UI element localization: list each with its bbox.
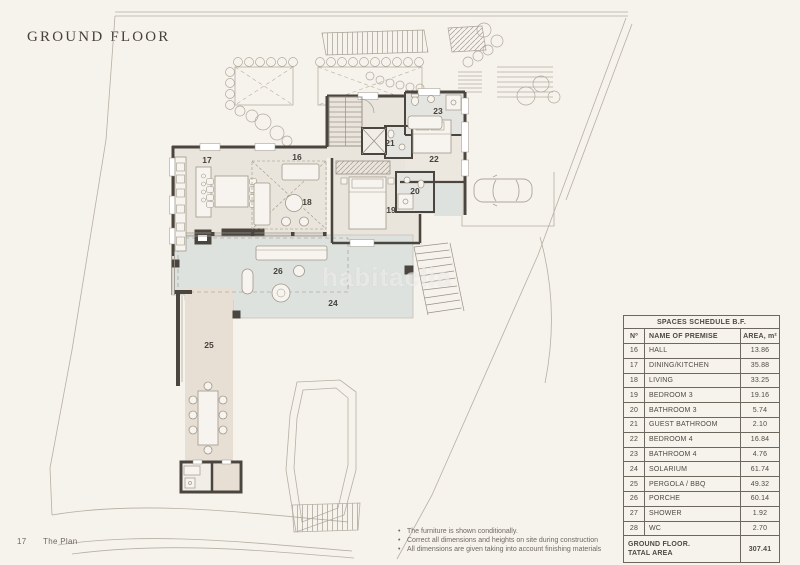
table-row: 24SOLARIUM61.74: [624, 462, 780, 477]
table-row: 18LIVING33.25: [624, 373, 780, 388]
bedroom3-bed: [341, 177, 394, 229]
room-label-porche: 26: [273, 266, 283, 276]
note-item: Correct all dimensions and heights on si…: [398, 536, 601, 545]
total-label-line1: GROUND FLOOR.: [628, 540, 738, 549]
table-row: 19BEDROOM 319.16: [624, 388, 780, 403]
page-number: 17: [17, 537, 27, 546]
table-row: 27SHOWER1.92: [624, 506, 780, 521]
lower-garden: [286, 380, 360, 532]
col-header-area: AREA, m²: [741, 329, 780, 344]
room-label-bedroom3: 19: [386, 205, 396, 215]
room-label-guest-bathroom: 21: [385, 138, 395, 148]
car: [474, 175, 532, 206]
room-label-bathroom3: 20: [410, 186, 420, 196]
total-label-line2: TATAL AREA: [628, 549, 738, 558]
col-header-name: NAME OF PREMISE: [645, 329, 741, 344]
table-row: 26PORCHE60.14: [624, 491, 780, 506]
table-row: 28WC2.70: [624, 521, 780, 536]
table-row: 20BATHROOM 35.74: [624, 403, 780, 418]
driveway-hatch: [322, 26, 486, 55]
terrace-steps: [458, 67, 553, 97]
construction-notes: The furniture is shown conditionally. Co…: [398, 527, 601, 554]
floor-plan-page: { "page": {"background": "#f6f2ec"}, "he…: [0, 0, 800, 565]
wardrobe: [336, 161, 390, 174]
table-title: SPACES SCHEDULE B.F.: [624, 316, 780, 329]
table-row: 25PERGOLA / BBQ49.32: [624, 477, 780, 492]
room-label-living: 18: [302, 197, 312, 207]
page-footer: 17 The Plan: [17, 537, 77, 546]
col-header-number: Nº: [624, 329, 645, 344]
room-label-hall: 16: [292, 152, 302, 162]
total-area-value: 307.41: [741, 536, 780, 563]
table-row: 16HALL13.86: [624, 344, 780, 359]
note-item: The furniture is shown conditionally.: [398, 527, 601, 536]
room-label-bedroom4: 22: [429, 154, 439, 164]
spaces-schedule-table: SPACES SCHEDULE B.F. Nº NAME OF PREMISE …: [623, 315, 780, 563]
elevator: [362, 128, 386, 154]
table-row: 21GUEST BATHROOM2.10: [624, 417, 780, 432]
note-item: All dimensions are given taking into acc…: [398, 545, 601, 554]
room-label-pergola: 25: [204, 340, 214, 350]
side-stairs: [414, 243, 464, 315]
footer-label: The Plan: [43, 537, 77, 546]
table-row: 17DINING/KITCHEN35.88: [624, 358, 780, 373]
room-label-dining-kitchen: 17: [202, 155, 212, 165]
room-label-bathroom4: 23: [433, 106, 443, 116]
room-label-solarium: 24: [328, 298, 338, 308]
table-total-row: GROUND FLOOR. TATAL AREA 307.41: [624, 536, 780, 563]
table-row: 23BATHROOM 44.76: [624, 447, 780, 462]
table-row: 22BEDROOM 416.84: [624, 432, 780, 447]
